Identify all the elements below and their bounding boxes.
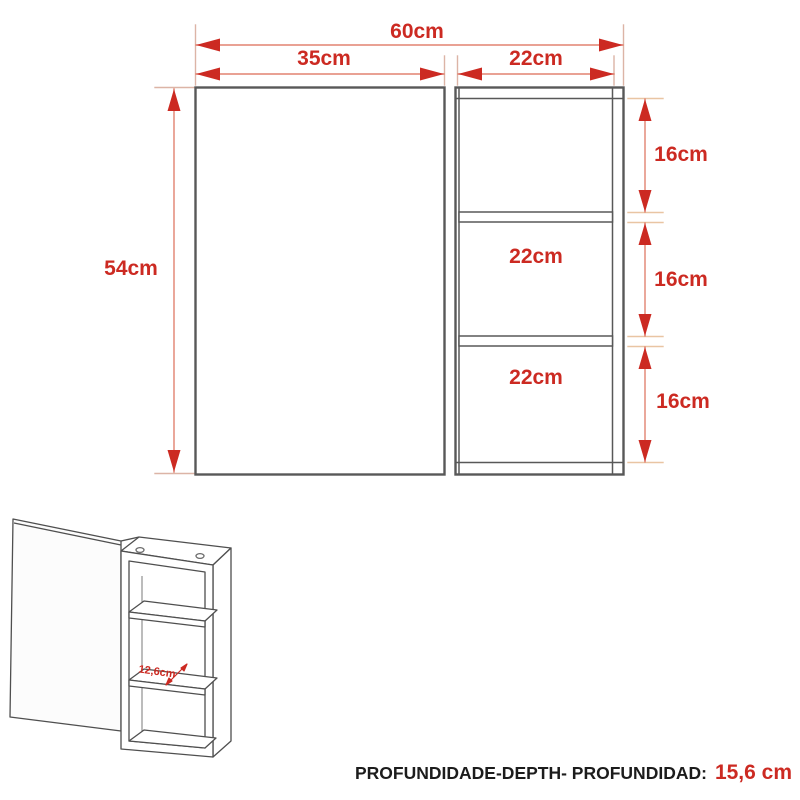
- total-width-label: 60cm: [390, 20, 444, 44]
- cabinet-side-panel: [213, 548, 231, 757]
- shelf-divider: [459, 336, 613, 346]
- compartment-width-label: 22cm: [509, 366, 563, 390]
- shelf-unit-outline: [456, 88, 624, 475]
- cabinet-front-structure: [196, 88, 624, 475]
- iso-view-drawing: [10, 519, 231, 757]
- compartment-height-label: 16cm: [654, 268, 708, 292]
- front-view-drawing: [155, 25, 663, 475]
- depth-footer: PROFUNDIDADE-DEPTH- PROFUNDIDAD: 15,6 cm: [355, 761, 792, 785]
- screw-hole: [136, 548, 144, 553]
- shelf-divider: [459, 212, 613, 222]
- screw-hole: [196, 554, 204, 559]
- dimension-diagram-page: 60cm 35cm 22cm 54cm 16cm 16cm 16cm 22cm …: [0, 0, 800, 800]
- door-width-label: 35cm: [297, 47, 351, 71]
- compartment-width-label: 22cm: [509, 245, 563, 269]
- column-width-label: 22cm: [509, 47, 563, 71]
- compartment-height-label: 16cm: [654, 143, 708, 167]
- mirror-panel-3d: [10, 519, 121, 731]
- compartment-height-label: 16cm: [656, 390, 710, 414]
- mirror-door-outline: [196, 88, 445, 475]
- cabinet-opening: [129, 561, 205, 748]
- depth-footer-label: PROFUNDIDADE-DEPTH- PROFUNDIDAD:: [355, 763, 707, 784]
- total-height-label: 54cm: [104, 257, 158, 281]
- depth-footer-value: 15,6 cm: [715, 761, 792, 785]
